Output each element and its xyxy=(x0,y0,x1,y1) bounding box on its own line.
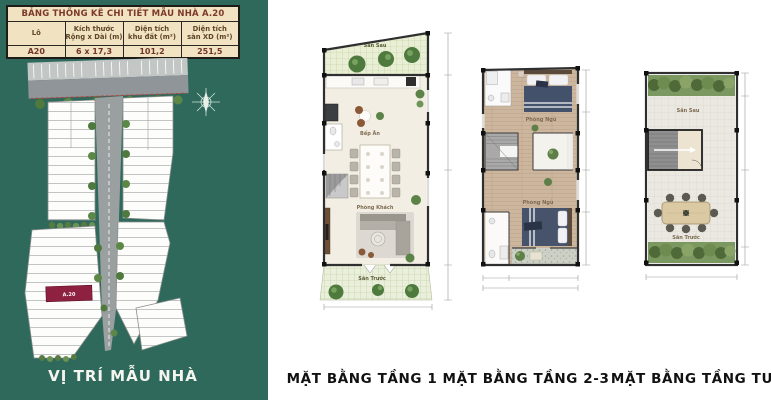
plant-icon xyxy=(544,178,552,186)
floor-2-3-caption: MẶT BẰNG TẦNG 2-3 xyxy=(443,371,610,387)
spec-table-title: BẢNG THỐNG KÊ CHI TIẾT MẪU NHÀ A.20 xyxy=(7,6,239,21)
front-yard-label: Sân Trước xyxy=(358,275,386,282)
tum-back-yard-label: Sân Sau xyxy=(677,107,700,114)
cell-land-area: 101,2 xyxy=(123,45,181,58)
stairs-2 xyxy=(485,133,518,170)
compass-icon xyxy=(192,88,220,116)
middle-room xyxy=(533,133,573,170)
plant-icon xyxy=(416,90,425,99)
plant-icon xyxy=(406,254,415,263)
cell-lot: A20 xyxy=(7,45,65,58)
floor-plan-1: Sân Sau Bếp Ăn xyxy=(312,28,467,313)
bathroom-bottom xyxy=(485,212,509,265)
stairs-1 xyxy=(326,174,348,198)
lot-block-upper-right xyxy=(123,96,173,220)
main-road xyxy=(27,58,188,99)
terrace xyxy=(648,96,735,247)
bed-bottom xyxy=(522,208,572,246)
back-yard-area: Sân Sau xyxy=(324,33,428,75)
balcony xyxy=(512,248,578,265)
kitchen-label: Bếp Ăn xyxy=(360,130,380,137)
lot-a20-label: A.20 xyxy=(63,292,77,298)
sofa-set xyxy=(356,212,414,258)
stairs-tum xyxy=(648,130,702,170)
front-yard-area: Sân Trước xyxy=(320,265,432,300)
lot-block-upper-left xyxy=(48,100,95,220)
kitchen-counter xyxy=(326,75,420,88)
spec-table: BẢNG THỐNG KÊ CHI TIẾT MẪU NHÀ A.20 Lô K… xyxy=(6,5,240,59)
bedroom-top-label: Phòng Ngủ xyxy=(526,116,557,123)
bedroom-bottom-label: Phòng Ngủ xyxy=(523,199,554,206)
plant-icon xyxy=(417,101,424,108)
location-panel: BẢNG THỐNG KÊ CHI TIẾT MẪU NHÀ A.20 Lô K… xyxy=(0,0,268,400)
floor-plan-2-3: Phòng Ngủ Phòng Ngủ xyxy=(478,62,603,312)
fridge xyxy=(325,104,338,121)
plant-icon xyxy=(532,125,539,132)
site-plan-caption: VỊ TRÍ MẪU NHÀ xyxy=(28,367,218,385)
tum-front-yard-label: Sân Trước xyxy=(672,234,700,241)
cell-floor-area: 251,5 xyxy=(181,45,239,58)
floor-1-caption: MẶT BẰNG TẦNG 1 xyxy=(287,371,438,387)
infographic-page: BẢNG THỐNG KÊ CHI TIẾT MẪU NHÀ A.20 Lô K… xyxy=(0,0,771,400)
col-header-land-area: Diện tích khu đất (m²) xyxy=(123,21,181,45)
site-plan-map: A.20 xyxy=(10,58,242,364)
col-header-lot: Lô xyxy=(7,21,65,45)
col-header-size: Kích thước Rộng x Dài (m) xyxy=(65,21,123,45)
hedge-bottom xyxy=(648,242,736,263)
floor-tum-caption: MẶT BẰNG TẦNG TUM xyxy=(611,371,771,387)
lot-block-lower-right xyxy=(116,222,187,350)
cell-size: 6 x 17,3 xyxy=(65,45,123,58)
bathroom-1 xyxy=(325,124,342,150)
living-room-label: Phòng Khách xyxy=(357,204,394,211)
floor-plan-tum: Sân Sau Sân Trước xyxy=(640,70,762,295)
hedge-top xyxy=(648,75,735,96)
col-header-floor-area: Diện tích sàn XD (m²) xyxy=(181,21,239,45)
bathroom-top xyxy=(485,70,511,106)
plant-icon xyxy=(411,195,421,205)
lot-a20-highlight: A.20 xyxy=(46,285,92,302)
